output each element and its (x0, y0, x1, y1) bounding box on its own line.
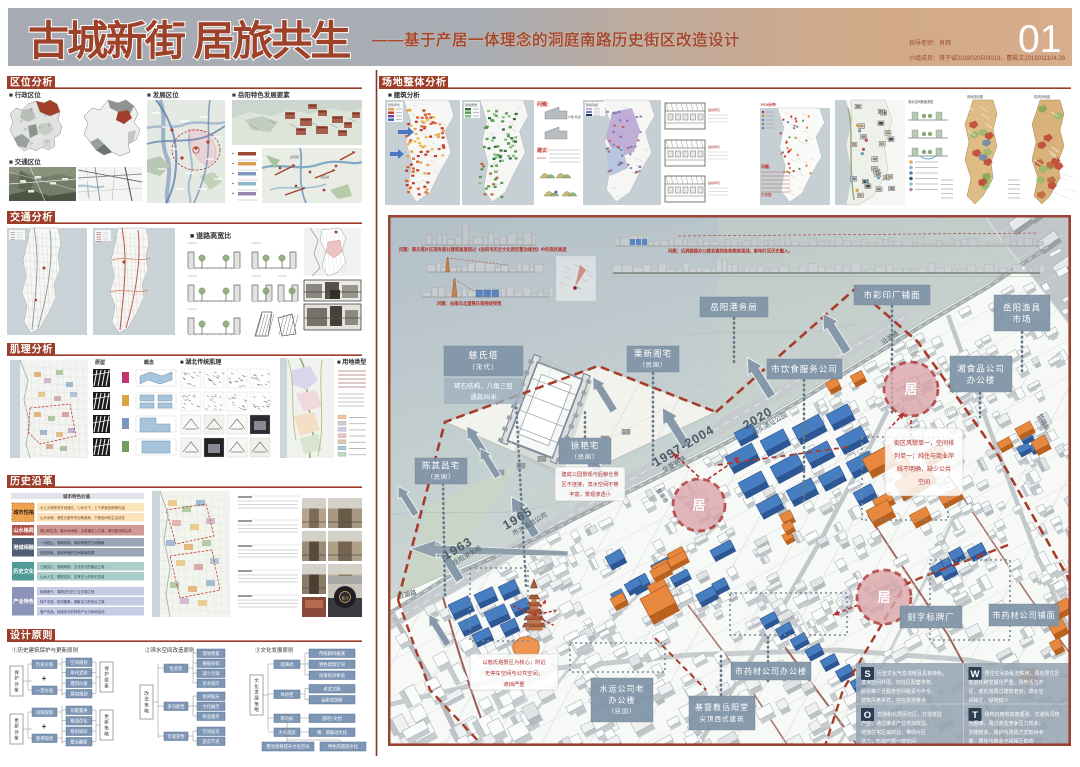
svg-text:■ 湖北传统肌理: ■ 湖北传统肌理 (180, 358, 221, 366)
svg-text:一水四山、港城双城，城街相联的古城格局: 一水四山、港城双城，城街相联的古城格局 (40, 540, 105, 545)
svg-text:休闲娱乐: 休闲娱乐 (202, 693, 220, 700)
svg-text:肌理分析: 肌理分析 (10, 342, 53, 355)
svg-text:（民国）: （民国） (639, 362, 667, 369)
svg-text:楼、湖联动文化: 楼、湖联动文化 (317, 729, 348, 736)
svg-text:··: ·· (112, 445, 114, 449)
svg-text:新地标: 新地标 (281, 715, 295, 722)
svg-text:象: 象 (14, 686, 19, 692)
svg-text:街区风貌单一，空间排: 街区风貌单一，空间排 (894, 439, 954, 447)
svg-text:■ 岳阳特色发展要素: ■ 岳阳特色发展要素 (232, 90, 290, 99)
svg-text:建筑质量: 建筑质量 (465, 102, 477, 107)
svg-text:大江大湖孕育开阔通达、心忧天下、上下求索的精神内涵: 大江大湖孕育开阔通达、心忧天下、上下求索的精神内涵 (40, 505, 125, 510)
svg-text:酒吧+文创: 酒吧+文创 (322, 715, 342, 722)
svg-text:城市性格: 城市性格 (13, 508, 35, 516)
svg-text:文化展示: 文化展示 (202, 703, 220, 710)
svg-text:办公楼: 办公楼 (967, 375, 996, 385)
svg-text:为困难，周边商业竞争压力较多；: 为困难，周边商业竞争压力较多； (969, 720, 1044, 727)
svg-text:▪: ▪ (232, 151, 234, 157)
svg-text:传统剧目展演: 传统剧目展演 (319, 650, 345, 657)
svg-text:对: 对 (14, 681, 19, 687)
svg-text:使用现状: 使用现状 (36, 735, 54, 742)
svg-text:建筑功能: 建筑功能 (586, 102, 598, 107)
svg-text:徐艳宅: 徐艳宅 (571, 440, 600, 450)
svg-text:户数 较多: 户数 较多 (568, 114, 581, 119)
svg-text:■ 建筑分析: ■ 建筑分析 (388, 90, 420, 99)
svg-text:港城相融: 港城相融 (13, 543, 35, 551)
svg-text:建筑风格多样，自在旅游景点: 建筑风格多样，自在旅游景点 (861, 697, 926, 704)
svg-text:观演式: 观演式 (281, 661, 295, 668)
svg-text:特色的旅游文化: 特色的旅游文化 (328, 743, 359, 750)
svg-text:滨水空间外围，旧住区配套学校、: 滨水空间外围，旧住区配套学校、 (861, 679, 936, 686)
svg-text:商业服务: 商业服务 (202, 713, 220, 720)
svg-text:指导老师：肖辉: 指导老师：肖辉 (909, 39, 951, 47)
svg-text:交通和北居民住区，打造进驻: 交通和北居民住区，打造进驻 (877, 711, 942, 718)
svg-text:历史沿革: 历史沿革 (10, 474, 53, 487)
svg-text:格局优化: 格局优化 (70, 717, 88, 724)
svg-text:功能置换: 功能置换 (70, 707, 88, 714)
svg-text:蒸汽: 蒸汽 (342, 596, 350, 601)
svg-text:居: 居 (877, 590, 890, 605)
svg-text:略: 略 (254, 706, 259, 713)
svg-text:整治街巷提升文化空间: 整治街巷提升文化空间 (267, 743, 310, 750)
svg-text:产业特色: 产业特色 (13, 597, 35, 605)
svg-text:居: 居 (904, 382, 917, 397)
svg-text:区位分析: 区位分析 (10, 75, 53, 88)
svg-text:用地规划图: 用地规划图 (967, 94, 983, 99)
svg-text:▪: ▪ (232, 171, 234, 177)
svg-text:生态性: 生态性 (170, 665, 184, 672)
svg-text:渔产优品、延续至今的特色产业与休闲活动: 渔产优品、延续至今的特色产业与休闲活动 (40, 609, 105, 614)
svg-text:现状用地图: 现状用地图 (1034, 94, 1050, 99)
svg-text:体验性: 体验性 (281, 691, 295, 698)
svg-text:问题：沿洞庭路办公楼会遮挡各栋粮库视线，影响片区历史融入。: 问题：沿洞庭路办公楼会遮挡各栋粮库视线，影响片区历史融入。 (668, 248, 793, 255)
svg-text:基督教岳阳堂: 基督教岳阳堂 (695, 702, 749, 712)
svg-text:空间层次: 空间层次 (202, 728, 220, 735)
svg-text:产业，通过推进产业增加效益、: 产业，通过推进产业增加效益、 (861, 720, 931, 727)
svg-text:小组成员：蒋子铖2018020503019、曹殿文20180: 小组成员：蒋子铖2018020503019、曹殿文2018011104.26 (909, 54, 1066, 62)
svg-text:贴线率高: 贴线率高 (708, 144, 720, 149)
svg-text:POI分布: POI分布 (761, 101, 776, 107)
svg-text:··: ·· (112, 422, 114, 426)
svg-text:市彩印厂铺面: 市彩印厂铺面 (863, 290, 920, 300)
svg-text:01: 01 (1018, 18, 1061, 61)
svg-text:游览节点: 游览节点 (202, 738, 220, 745)
svg-text:历史文化气息浓郁且具有特色，: 历史文化气息浓郁且具有特色， (877, 670, 947, 677)
svg-text:山水洲城、港性长廊孕育包畅典美、宁静宜间的生活状态: 山水洲城、港性长廊孕育包畅典美、宁静宜间的生活状态 (40, 515, 125, 520)
svg-text:以慈氏塔景区为核心；附近: 以慈氏塔景区为核心；附近 (482, 658, 546, 666)
svg-text:O: O (864, 710, 871, 721)
svg-text:市药材公司铺面: 市药材公司铺面 (993, 610, 1056, 620)
svg-text:建成公园景观与后粮仓景: 建成公园景观与后粮仓景 (561, 470, 618, 478)
svg-text:××××××: ×××××× (252, 275, 261, 278)
svg-text:××××××: ×××××× (188, 275, 197, 278)
svg-text:③文化发展原则: ③文化发展原则 (255, 646, 294, 654)
svg-text:栗新阁宅: 栗新阁宅 (634, 348, 672, 358)
svg-text:对: 对 (14, 729, 19, 735)
svg-text:湿地修复: 湿地修复 (202, 650, 220, 657)
svg-text:特色建筑空间: 特色建筑空间 (319, 661, 345, 668)
svg-text:S: S (864, 669, 870, 680)
svg-text:江湖交汇、湖湘风韵，文化多元的融合之地: 江湖交汇、湖湘风韵，文化多元的融合之地 (40, 564, 105, 569)
svg-text:××××××: ×××××× (278, 275, 287, 278)
svg-text:间缺乏，绿地较少: 间缺乏，绿地较少 (969, 697, 1009, 704)
svg-text:列单一；纯住与商业岸: 列单一；纯住与商业岸 (894, 452, 954, 460)
svg-text:修旧如旧: 修旧如旧 (70, 728, 87, 735)
svg-text:问题:: 问题: (537, 101, 549, 108)
svg-text:滨水空间断面类型: 滨水空间断面类型 (908, 99, 934, 104)
svg-text:刻字标牌厂: 刻字标牌厂 (907, 612, 955, 622)
svg-text:××××××: ×××××× (188, 308, 197, 311)
svg-text:山水格局: 山水格局 (13, 526, 34, 534)
svg-text:+: + (42, 674, 47, 683)
svg-text:古城新街 居旅共生: 古城新街 居旅共生 (28, 18, 350, 64)
svg-text:尖顶西式建筑: 尖顶西式建筑 (700, 714, 745, 723)
svg-text:砖石结构，八角三层: 砖石结构，八角三层 (454, 381, 513, 390)
svg-text:临港而兴、湖湘记忆的工业文明之地: 临港而兴、湖湘记忆的工业文明之地 (40, 589, 95, 594)
svg-text:概念: 概念 (144, 359, 154, 366)
svg-text:贴线率高: 贴线率高 (708, 107, 720, 112)
svg-text:城市特色价值: 城市特色价值 (63, 493, 90, 500)
svg-text:民俗民风体验: 民俗民风体验 (319, 672, 345, 679)
svg-text:特产丰饶、物流集散，港聚活力的商业之城: 特产丰饶、物流集散，港聚活力的商业之城 (40, 599, 105, 604)
svg-text:减少污染: 减少污染 (202, 670, 220, 677)
svg-text:W: W (971, 669, 980, 680)
svg-text:原型: 原型 (95, 359, 105, 366)
svg-text:+: + (42, 722, 47, 731)
svg-text:运用式创新: 运用式创新 (321, 696, 343, 703)
svg-text:（民国）: （民国） (427, 474, 455, 481)
svg-text:略: 略 (104, 730, 109, 737)
svg-text:象: 象 (14, 734, 19, 740)
svg-text:无停车空间与公共空间；: 无停车空间与公共空间； (485, 669, 543, 677)
svg-text:风貌保留: 风貌保留 (36, 709, 53, 716)
svg-text:②滨水空间改造原则: ②滨水空间改造原则 (145, 646, 195, 654)
svg-text:问题：由南向北望慈氏塔视线受阻: 问题：由南向北望慈氏塔视线受阻 (437, 300, 502, 307)
svg-text:居住空间杂乱无秩序，原有居住区: 居住空间杂乱无秩序，原有居住区 (985, 670, 1060, 677)
svg-text:但更醒: 但更醒 (761, 192, 772, 197)
svg-text:多功能性: 多功能性 (167, 703, 185, 710)
svg-text:可观赏性: 可观赏性 (167, 733, 185, 740)
svg-text:老龄化和空巢化严重，场地活力不: 老龄化和空巢化严重，场地活力不 (969, 679, 1044, 686)
svg-text:▪: ▪ (232, 161, 234, 167)
svg-text:××××××: ×××××× (188, 242, 197, 245)
svg-text:整治翻新: 整治翻新 (70, 738, 88, 745)
svg-text:通高39米: 通高39米 (470, 392, 497, 401)
svg-text:岳阳楼: 岳阳楼 (290, 154, 299, 159)
svg-text:场地整体分析: 场地整体分析 (382, 75, 447, 88)
svg-text:——基于产居一体理念的洞庭南路历史街区改造设计: ——基于产居一体理念的洞庭南路历史街区改造设计 (372, 30, 740, 49)
svg-text:陈其昌宅: 陈其昌宅 (422, 460, 460, 470)
svg-text:略: 略 (144, 707, 149, 714)
svg-text:历史价值: 历史价值 (36, 661, 54, 668)
svg-text:■ 发展区位: ■ 发展区位 (147, 90, 179, 99)
svg-text:丰富，景观渗透小: 丰富，景观渗透小 (569, 490, 611, 498)
svg-text:■ 用地类型: ■ 用地类型 (337, 358, 366, 366)
svg-text:T: T (972, 710, 978, 721)
svg-text:区不连接，滨水空间不够: 区不连接，滨水空间不够 (561, 480, 619, 488)
svg-text:▪: ▪ (232, 181, 234, 187)
svg-text:建筑价值: 建筑价值 (70, 680, 88, 687)
svg-text:历史文化: 历史文化 (13, 567, 35, 575)
svg-text:场地内用地高度紧张，交通情况较: 场地内用地高度紧张，交通情况较 (985, 711, 1060, 718)
svg-text:遮挡严重: 遮挡严重 (503, 680, 525, 688)
svg-text:市药材公司办公楼: 市药材公司办公楼 (735, 666, 807, 676)
svg-text:··: ·· (112, 376, 114, 380)
svg-text:××××××: ×××××× (252, 242, 261, 245)
svg-text:交通分析: 交通分析 (10, 210, 53, 223)
svg-text:空间: 空间 (918, 478, 930, 486)
svg-text:■ 行政区位: ■ 行政区位 (9, 90, 41, 99)
svg-text:①历史建筑保护与更新原则: ①历史建筑保护与更新原则 (12, 646, 78, 654)
svg-text:问题:: 问题: (761, 163, 770, 169)
svg-text:老式文脉: 老式文脉 (323, 685, 341, 692)
svg-text:湘食品公司: 湘食品公司 (957, 363, 1005, 373)
svg-text:空间规划: 空间规划 (70, 659, 87, 666)
svg-text:建筑年代: 建筑年代 (388, 102, 400, 107)
svg-text:建筑规划: 建筑规划 (70, 690, 87, 697)
svg-text:办公楼: 办公楼 (609, 695, 636, 705)
svg-text:亲水驳岸: 亲水驳岸 (202, 680, 220, 687)
svg-text:■ 道路高宽比: ■ 道路高宽比 (190, 231, 231, 240)
svg-text:植被多样: 植被多样 (202, 660, 220, 667)
svg-text:素: 素 (104, 682, 109, 688)
svg-text:文物较多，保护与改造方式有待考: 文物较多，保护与改造方式有待考 (969, 729, 1044, 736)
svg-text:增加住宅区域商业，带动片区: 增加住宅区域商业，带动片区 (861, 729, 926, 736)
svg-text:问题：慈氏塔片区现有部分建筑高度超过《岳阳市历史文化街区整治: 问题：慈氏塔片区现有部分建筑高度超过《岳阳市历史文化街区整治规划》中的现状高度 (399, 246, 567, 253)
svg-text:洞山辉生态、聚水休闲地，沿着通达入江城，湖泊相邻洞山林: 洞山辉生态、聚水休闲地，沿着通达入江城，湖泊相邻洞山林 (40, 528, 132, 533)
svg-text:水运公司老: 水运公司老 (600, 683, 645, 693)
svg-text:市饮食服务公司: 市饮食服务公司 (771, 364, 838, 374)
svg-text:▪: ▪ (232, 191, 234, 197)
svg-text:足，慈氏塔周边建筑老旧，滨水空: 足，慈氏塔周边建筑老旧，滨水空 (969, 688, 1044, 695)
svg-text:山水人文，楚韵遗存，名贤志士的历史名城: 山水人文，楚韵遗存，名贤志士的历史名城 (40, 574, 105, 579)
svg-text:■ 交通区位: ■ 交通区位 (9, 157, 41, 166)
svg-text:（民国）: （民国） (571, 454, 599, 461)
svg-text:慈氏塔: 慈氏塔 (468, 350, 498, 361)
svg-text:设计原则: 设计原则 (10, 628, 53, 641)
svg-text:岳阳港务局: 岳阳港务局 (710, 302, 758, 312)
svg-text:岳阳渔具: 岳阳渔具 (1003, 302, 1041, 312)
svg-text:年代式样: 年代式样 (70, 669, 88, 676)
svg-text:建议:: 建议: (536, 147, 549, 154)
svg-text:洞庭湖: 洞庭湖 (320, 174, 329, 179)
svg-text:居: 居 (692, 498, 705, 513)
svg-text:（宋代）: （宋代） (469, 362, 499, 371)
svg-text:市场: 市场 (1012, 314, 1031, 324)
svg-text:一定价值: 一定价值 (36, 687, 54, 694)
svg-text:（民国）: （民国） (608, 709, 636, 716)
svg-text:贴线率高: 贴线率高 (708, 180, 720, 185)
svg-text:大众旅游: 大众旅游 (278, 729, 296, 736)
svg-text:田园有致，港城声貌的空间格局肌理: 田园有致，港城声貌的空间格局肌理 (40, 550, 95, 555)
svg-text:民俗等少且服务空间租赁与不全，: 民俗等少且服务空间租赁与不全， (861, 688, 936, 695)
svg-text:线不明确，缺少公共: 线不明确，缺少公共 (897, 465, 951, 473)
svg-text:··: ·· (112, 399, 114, 403)
